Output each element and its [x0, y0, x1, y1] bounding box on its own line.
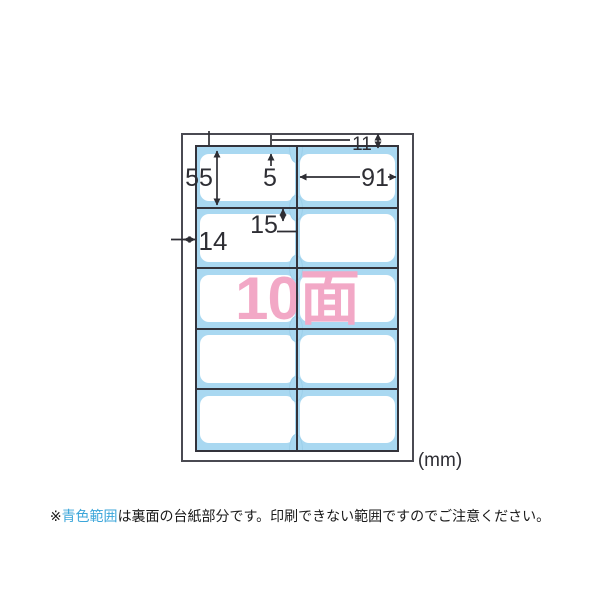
- page: { "diagram": { "faces_label": "10面", "un…: [0, 0, 600, 600]
- dimension-label-55: 55: [182, 166, 216, 191]
- unit-label: (mm): [415, 451, 465, 470]
- footnote-marker: ※: [50, 508, 62, 524]
- dimension-label-11: 11: [350, 135, 374, 154]
- footnote-highlight: 青色範囲: [62, 508, 118, 524]
- dimension-label-5: 5: [258, 166, 282, 191]
- dimension-label-91: 91: [357, 166, 393, 191]
- dimension-label-14: 14: [196, 228, 230, 254]
- footnote-text: は裏面の台紙部分です。印刷できない範囲ですのでご注意ください。: [118, 508, 551, 524]
- footnote: ※青色範囲は裏面の台紙部分です。印刷できない範囲ですのでご注意ください。: [0, 506, 600, 526]
- dimension-label-15: 15: [244, 213, 284, 238]
